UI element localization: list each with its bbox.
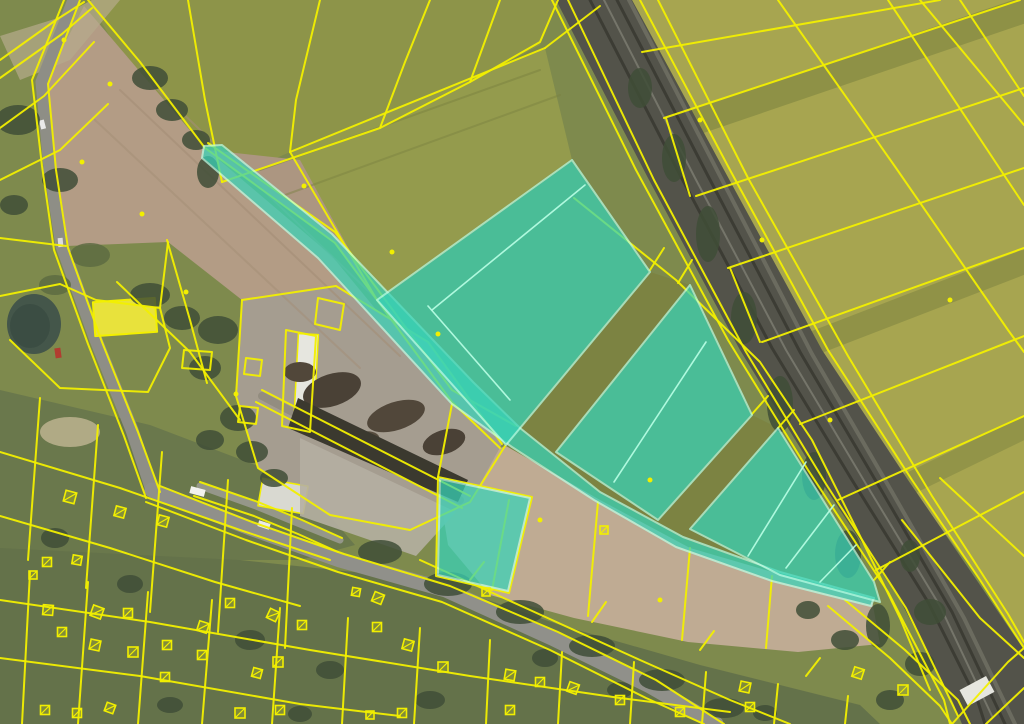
building-symbol xyxy=(852,667,865,680)
building-symbol xyxy=(114,506,126,518)
building-symbol xyxy=(366,711,374,719)
building-symbol xyxy=(739,681,751,693)
building-symbol xyxy=(43,605,54,616)
field-marker xyxy=(760,238,765,243)
building-symbol xyxy=(29,571,37,579)
field-marker xyxy=(698,118,703,123)
building-symbol xyxy=(104,702,116,714)
building-symbol xyxy=(41,706,50,715)
compost-pile xyxy=(284,362,316,382)
tree-canopy xyxy=(914,599,946,625)
building-symbol xyxy=(898,685,908,695)
building-symbol xyxy=(438,662,448,672)
pond-deep xyxy=(10,304,50,348)
building-symbol xyxy=(600,526,608,534)
tree-canopy xyxy=(831,630,859,650)
scrub-patch xyxy=(70,243,110,267)
field-marker xyxy=(234,392,239,397)
building-symbol xyxy=(373,623,382,632)
tree-canopy xyxy=(796,601,820,619)
building-symbol xyxy=(273,657,283,667)
building-symbol xyxy=(58,628,67,637)
building-symbol xyxy=(198,651,207,660)
field-marker xyxy=(828,418,833,423)
building-symbol xyxy=(43,558,52,567)
tree-canopy xyxy=(288,706,312,722)
building-symbol xyxy=(676,708,685,717)
field-marker xyxy=(302,184,307,189)
building-symbol xyxy=(402,639,414,651)
building-symbol xyxy=(161,673,170,682)
field-marker xyxy=(80,160,85,165)
tree-canopy xyxy=(236,441,268,463)
building-symbol xyxy=(72,555,82,565)
tree-canopy xyxy=(696,206,720,262)
tree-canopy xyxy=(0,195,28,215)
tree-canopy xyxy=(198,316,238,344)
field-marker xyxy=(648,478,653,483)
building-symbol xyxy=(504,669,516,681)
tree-canopy xyxy=(157,697,183,713)
field-marker xyxy=(140,212,145,217)
building-symbol xyxy=(746,703,755,712)
building-symbol xyxy=(506,706,515,715)
building-symbol xyxy=(536,678,545,687)
building-symbol xyxy=(163,641,172,650)
field-marker xyxy=(948,298,953,303)
field-marker xyxy=(538,518,543,523)
cadastral-map-canvas[interactable] xyxy=(0,0,1024,724)
building-symbol xyxy=(63,490,76,503)
building-symbol xyxy=(197,621,210,634)
building-symbol xyxy=(298,621,307,630)
building-symbol xyxy=(73,709,82,718)
building-symbol xyxy=(276,706,285,715)
field-marker xyxy=(108,82,113,87)
sand-patch xyxy=(40,417,100,447)
building-symbol xyxy=(567,682,580,695)
building-symbol xyxy=(616,696,625,705)
tree-canopy xyxy=(639,669,685,691)
field-marker xyxy=(390,250,395,255)
tree-canopy xyxy=(130,283,170,307)
building-symbol xyxy=(124,609,133,618)
building-symbol xyxy=(128,647,138,657)
tree-canopy xyxy=(164,306,200,330)
tree-canopy xyxy=(628,68,652,108)
building-symbol xyxy=(89,639,101,651)
building-symbol xyxy=(235,708,245,718)
building-symbol xyxy=(226,599,235,608)
field-marker xyxy=(62,38,67,43)
field-marker xyxy=(436,332,441,337)
tree-canopy xyxy=(196,430,224,450)
tree-canopy xyxy=(415,691,445,709)
map-viewport[interactable] xyxy=(0,0,1024,724)
tree-canopy xyxy=(132,66,168,90)
field-marker xyxy=(184,290,189,295)
tree-canopy xyxy=(42,168,78,192)
building-symbol xyxy=(482,588,490,596)
tree-canopy xyxy=(316,661,344,679)
building-symbol xyxy=(251,667,262,678)
building-symbol xyxy=(398,709,407,718)
field-marker xyxy=(658,598,663,603)
tree-canopy xyxy=(117,575,143,593)
building-symbol xyxy=(157,515,169,527)
building-symbol xyxy=(351,587,360,596)
